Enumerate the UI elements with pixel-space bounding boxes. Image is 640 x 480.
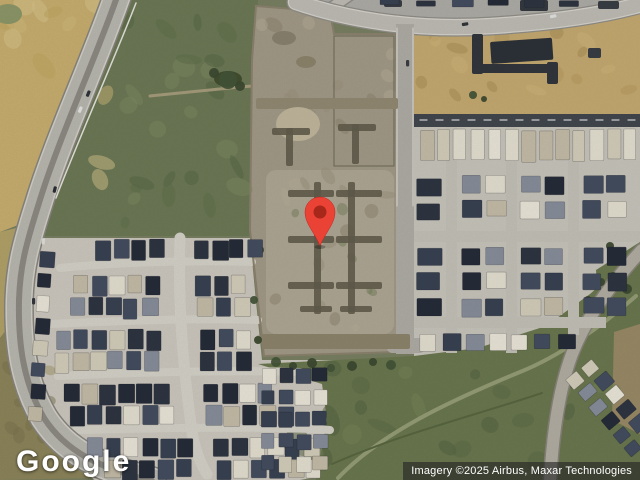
google-logo[interactable]: Google: [16, 447, 131, 477]
map-viewport[interactable]: Google Imagery ©2025 Airbus, Maxar Techn…: [0, 0, 640, 480]
satellite-imagery[interactable]: [0, 0, 640, 480]
map-attribution: Imagery ©2025 Airbus, Maxar Technologies: [403, 462, 640, 480]
